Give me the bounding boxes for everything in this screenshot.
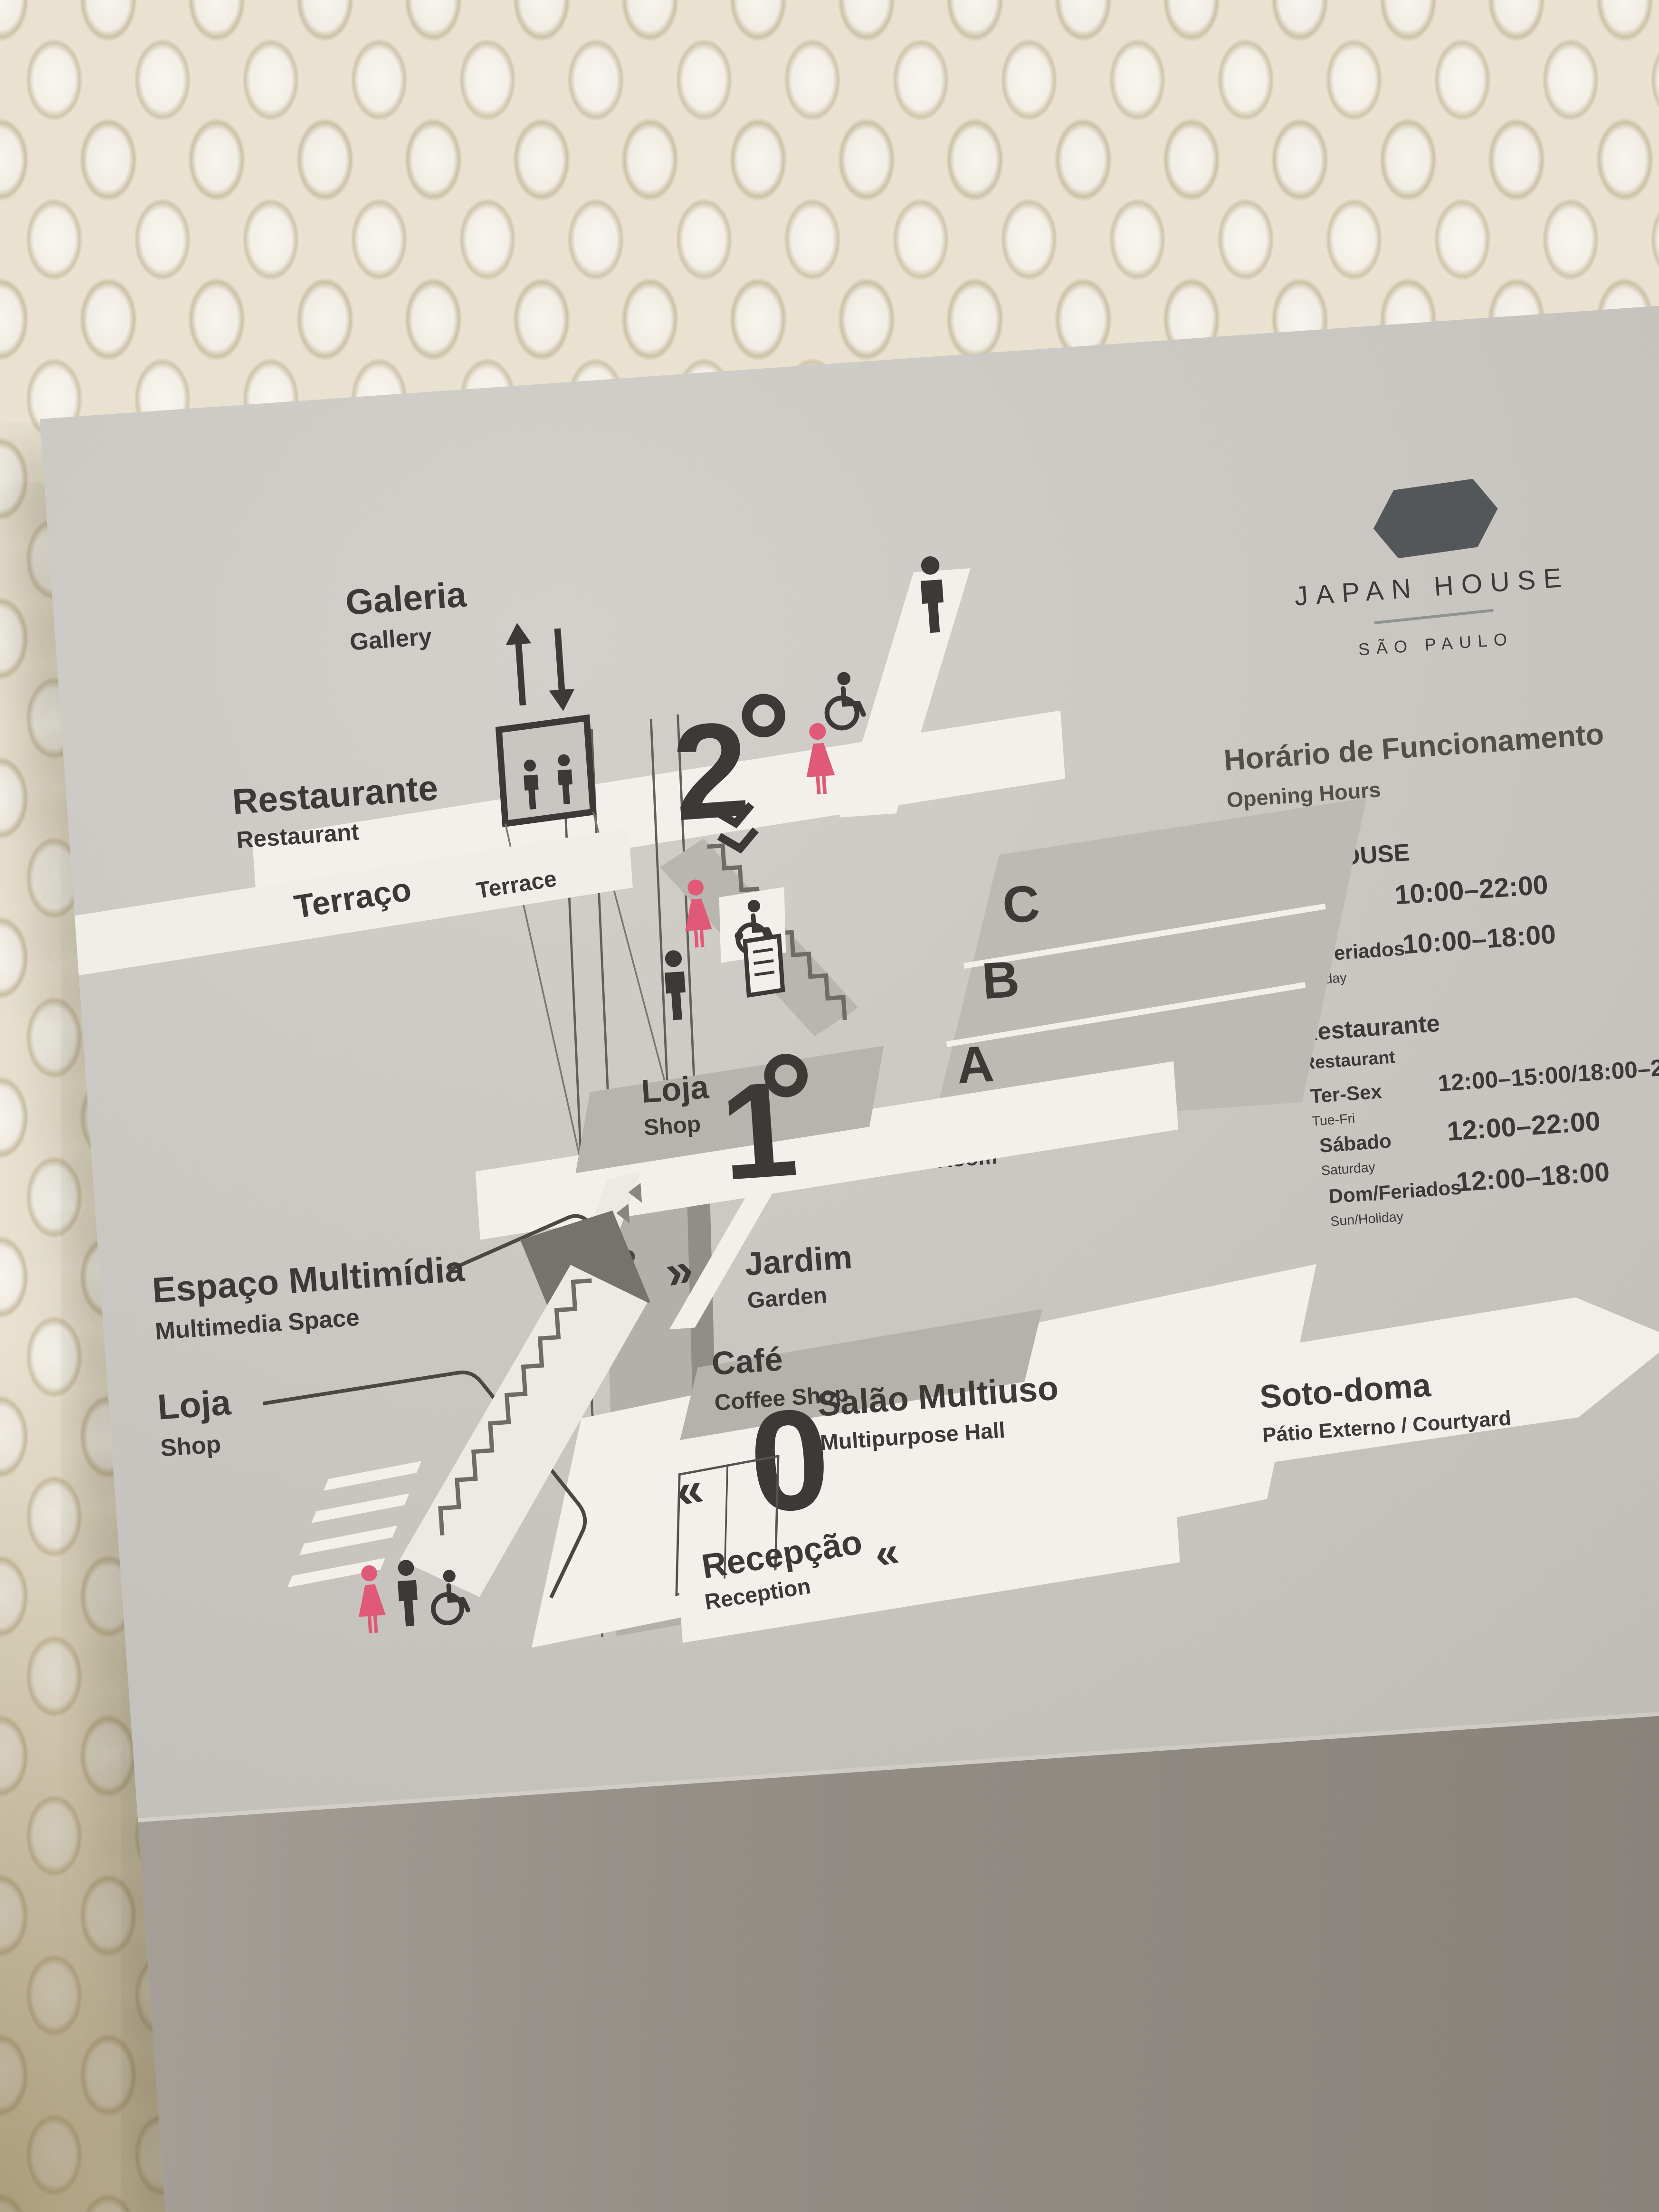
jardim-label: Jardim — [744, 1239, 853, 1283]
brand-city: SÃO PAULO — [1358, 629, 1514, 659]
arrow-down-icon — [549, 689, 576, 712]
room-b-label: B — [980, 950, 1021, 1010]
hours-row-days-en: Sun/Holiday — [1330, 1209, 1404, 1230]
hours-row-days-en: Saturday — [1321, 1160, 1376, 1179]
shop-label: Shop — [643, 1112, 701, 1141]
photo-of-wayfinding-sign: JAPAN HOUSE SÃO PAULO Horário de Funcion… — [0, 0, 1659, 2212]
hours-title-pt: Horário de Funcionamento — [1223, 717, 1605, 777]
hours-row-days: Sábado — [1319, 1129, 1392, 1156]
wheelchair-icon — [824, 671, 864, 729]
gallery-label: Gallery — [349, 623, 433, 656]
cafe-label: Café — [710, 1341, 784, 1382]
garden-label: Garden — [746, 1283, 828, 1314]
woman-icon — [355, 1564, 387, 1634]
hours-row-time: 10:00–18:00 — [1402, 919, 1557, 960]
man-icon — [396, 1559, 420, 1627]
japan-house-hexagon-icon — [1371, 477, 1501, 560]
floor2-numeral: 2 — [668, 693, 753, 849]
hours-row-days: Dom/Feriados — [1328, 1176, 1462, 1207]
floor-diagram: JAPAN HOUSE SÃO PAULO Horário de Funcion… — [40, 295, 1659, 1818]
loja-label: Loja — [640, 1068, 710, 1110]
hours-row-days: Ter-Sex — [1309, 1080, 1383, 1107]
arrow-up-icon — [504, 622, 531, 645]
hours-row-time: 12:00–18:00 — [1455, 1156, 1611, 1197]
galeria-label: Galeria — [344, 574, 468, 622]
hours-row-time: 12:00–22:00 — [1446, 1106, 1602, 1147]
espaco-multimidia-label: Espaço Multimídia — [151, 1249, 467, 1310]
restaurante-label: Restaurante — [231, 768, 439, 822]
sign-face: JAPAN HOUSE SÃO PAULO Horário de Funcion… — [40, 295, 1659, 1818]
hours-row-time: 12:00–15:00/18:00–22:00 — [1437, 1051, 1659, 1096]
shop-lower-label: Shop — [160, 1430, 222, 1462]
hours-restaurant-name-en: Restaurant — [1302, 1047, 1396, 1073]
room-c-label: C — [1001, 874, 1041, 934]
brand-logo: JAPAN HOUSE SÃO PAULO — [1287, 473, 1573, 664]
logo-divider — [1374, 610, 1494, 623]
hours-row-days-en: Tue-Fri — [1312, 1111, 1356, 1129]
ordinal-mark — [746, 698, 781, 733]
multimedia-space-label: Multimedia Space — [154, 1304, 361, 1345]
room-a-label: A — [954, 1034, 995, 1094]
loja-lower-label: Loja — [156, 1382, 233, 1427]
person-icon — [663, 950, 687, 1020]
elevator-panel-icon — [734, 929, 783, 996]
hours-row-time: 10:00–22:00 — [1394, 869, 1549, 910]
directory-totem-sign: JAPAN HOUSE SÃO PAULO Horário de Funcion… — [40, 295, 1659, 2212]
scene: JAPAN HOUSE SÃO PAULO Horário de Funcion… — [0, 0, 1659, 2212]
brand-name: JAPAN HOUSE — [1294, 562, 1571, 611]
